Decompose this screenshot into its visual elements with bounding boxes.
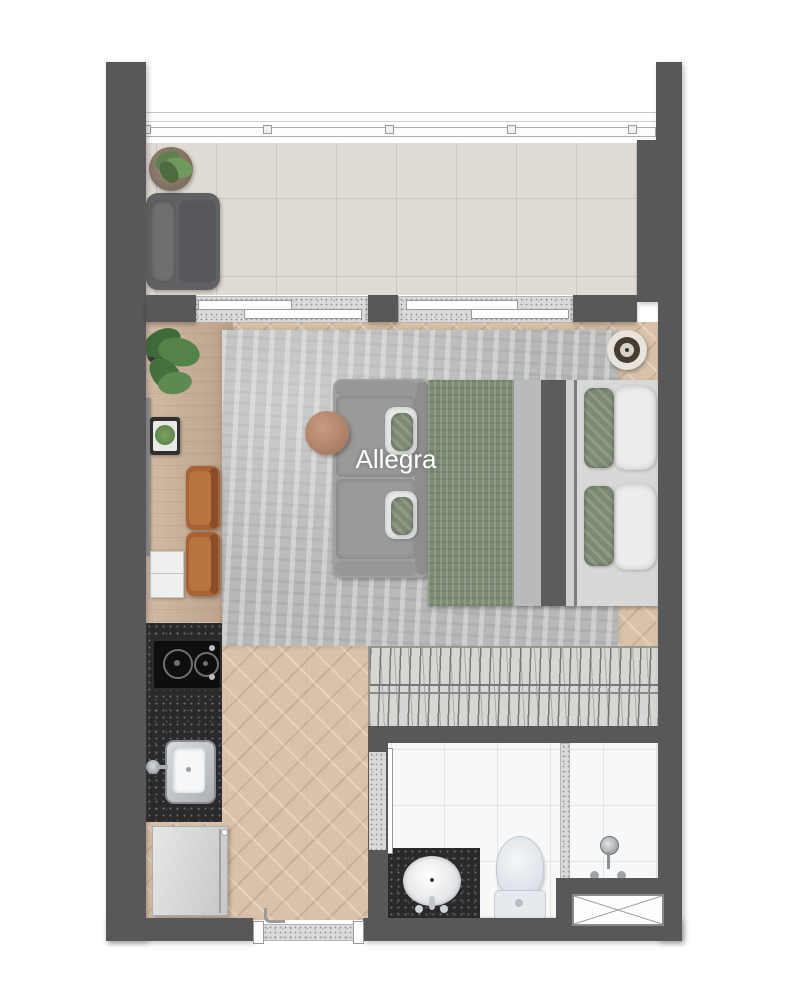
- sink-drain: [186, 767, 191, 772]
- shower-partition: [560, 743, 570, 885]
- laptop-hinge-line: [151, 573, 183, 574]
- balcony-window: [142, 112, 656, 143]
- sliding-door-track-right: [398, 296, 575, 323]
- armchair-seat: [176, 199, 216, 284]
- sliding-door-track-left: [193, 296, 370, 323]
- burner-icon: [194, 652, 219, 677]
- window-frame-band: [142, 127, 656, 137]
- wall-right: [658, 302, 682, 941]
- cooktop-knob: [209, 645, 215, 651]
- bed-dark-runner: [541, 380, 566, 606]
- wall-right-top-pillar: [656, 62, 682, 140]
- kitchen-sink: [165, 740, 216, 804]
- leather-chair: [186, 466, 220, 530]
- burner-center: [203, 661, 208, 666]
- fridge-hinge-dot: [221, 829, 228, 836]
- sliding-door-panel: [244, 309, 362, 319]
- vanity-handle-dot: [415, 905, 423, 913]
- window-tick-icon: [385, 125, 394, 134]
- door-handle-icon: [264, 908, 285, 923]
- sofa-armrest: [335, 381, 417, 396]
- burner-center: [174, 660, 180, 666]
- wall-left: [106, 62, 146, 941]
- sofa-green-cushion: [391, 497, 413, 535]
- entry-door-jamb: [253, 921, 264, 944]
- wall-divider-right: [573, 295, 637, 322]
- window-glass-line: [142, 121, 656, 122]
- window-tick-icon: [507, 125, 516, 134]
- fridge-door-line: [219, 829, 221, 913]
- bed-white-pillow: [612, 484, 656, 570]
- round-side-decor: [607, 330, 647, 370]
- refrigerator: [152, 826, 228, 916]
- bed-green-pillow: [584, 388, 614, 468]
- double-bed: [428, 380, 658, 606]
- armchair-back-cushion: [150, 200, 176, 283]
- entry-door-threshold: [262, 924, 355, 941]
- vanity-drain-dot: [430, 878, 434, 882]
- sink-faucet-arm: [156, 765, 168, 769]
- balcony-armchair: [146, 193, 220, 290]
- bed-green-pillow: [584, 486, 614, 566]
- toilet-flush-dot: [515, 899, 523, 907]
- bed-green-blanket: [428, 380, 514, 606]
- decor-dot: [625, 348, 629, 352]
- toilet: [494, 836, 544, 920]
- laptop: [150, 551, 184, 598]
- sofa-backrest: [415, 382, 429, 575]
- sofa-armrest: [335, 561, 417, 576]
- shower-arm: [607, 852, 610, 869]
- bathroom-door-opening: [369, 752, 386, 850]
- chair-backrest: [210, 468, 218, 528]
- cooktop-knob: [209, 674, 215, 680]
- window-tick-icon: [263, 125, 272, 134]
- wall-divider-left: [146, 295, 196, 322]
- unit-label: Allegra: [330, 444, 462, 475]
- floor-plan: Allegra: [0, 0, 801, 1000]
- burner-icon: [163, 649, 193, 679]
- wall-bottom-left: [106, 918, 253, 941]
- window-tick-icon: [628, 125, 637, 134]
- bed-gray-sheet: [514, 380, 541, 606]
- sliding-door-panel: [471, 309, 569, 319]
- cooktop: [152, 639, 222, 690]
- bed-white-pillow: [612, 386, 656, 470]
- two-seat-sofa: [333, 379, 429, 578]
- toilet-bowl: [496, 836, 544, 898]
- wall-balcony-right: [637, 140, 682, 302]
- leather-chair: [186, 532, 220, 596]
- chair-backrest: [210, 534, 218, 594]
- chair-seat: [189, 471, 211, 525]
- chair-seat: [189, 537, 211, 591]
- wardrobe-rail: [370, 684, 660, 694]
- wall-closet-south: [368, 726, 658, 743]
- tray-plant: [155, 425, 175, 445]
- vanity-faucet: [429, 896, 435, 910]
- wardrobe-with-hangers: [368, 646, 662, 730]
- shaft-x-icon: [574, 896, 662, 924]
- serving-tray: [150, 417, 180, 455]
- wall-divider-mid: [368, 295, 398, 322]
- vanity-handle-dot: [440, 905, 448, 913]
- entry-door-jamb: [353, 921, 364, 944]
- ventilation-shaft: [572, 894, 664, 926]
